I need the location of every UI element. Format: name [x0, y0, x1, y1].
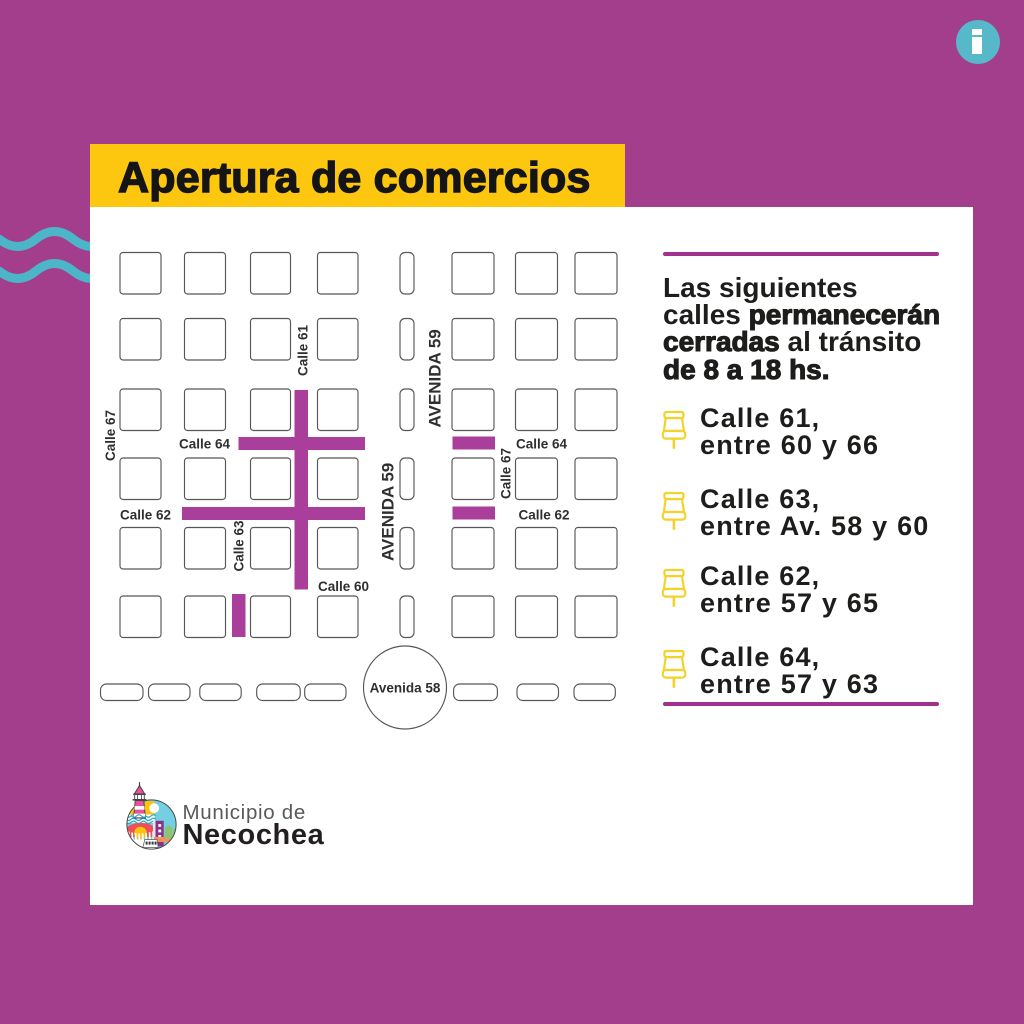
svg-text:Calle 67: Calle 67	[103, 410, 118, 461]
svg-text:AVENIDA 59: AVENIDA 59	[426, 329, 445, 427]
svg-text:Avenida 58: Avenida 58	[370, 681, 441, 696]
svg-text:Calle 67: Calle 67	[499, 448, 514, 499]
svg-text:Calle 62: Calle 62	[120, 508, 171, 523]
svg-text:Calle 63: Calle 63	[232, 520, 247, 572]
svg-text:AVENIDA 59: AVENIDA 59	[379, 463, 398, 561]
svg-text:Calle 60: Calle 60	[318, 579, 369, 594]
svg-text:Calle 64: Calle 64	[516, 437, 568, 452]
svg-text:Calle 64: Calle 64	[179, 437, 231, 452]
svg-text:Calle 62: Calle 62	[519, 508, 570, 523]
svg-text:Calle 61: Calle 61	[296, 324, 311, 376]
